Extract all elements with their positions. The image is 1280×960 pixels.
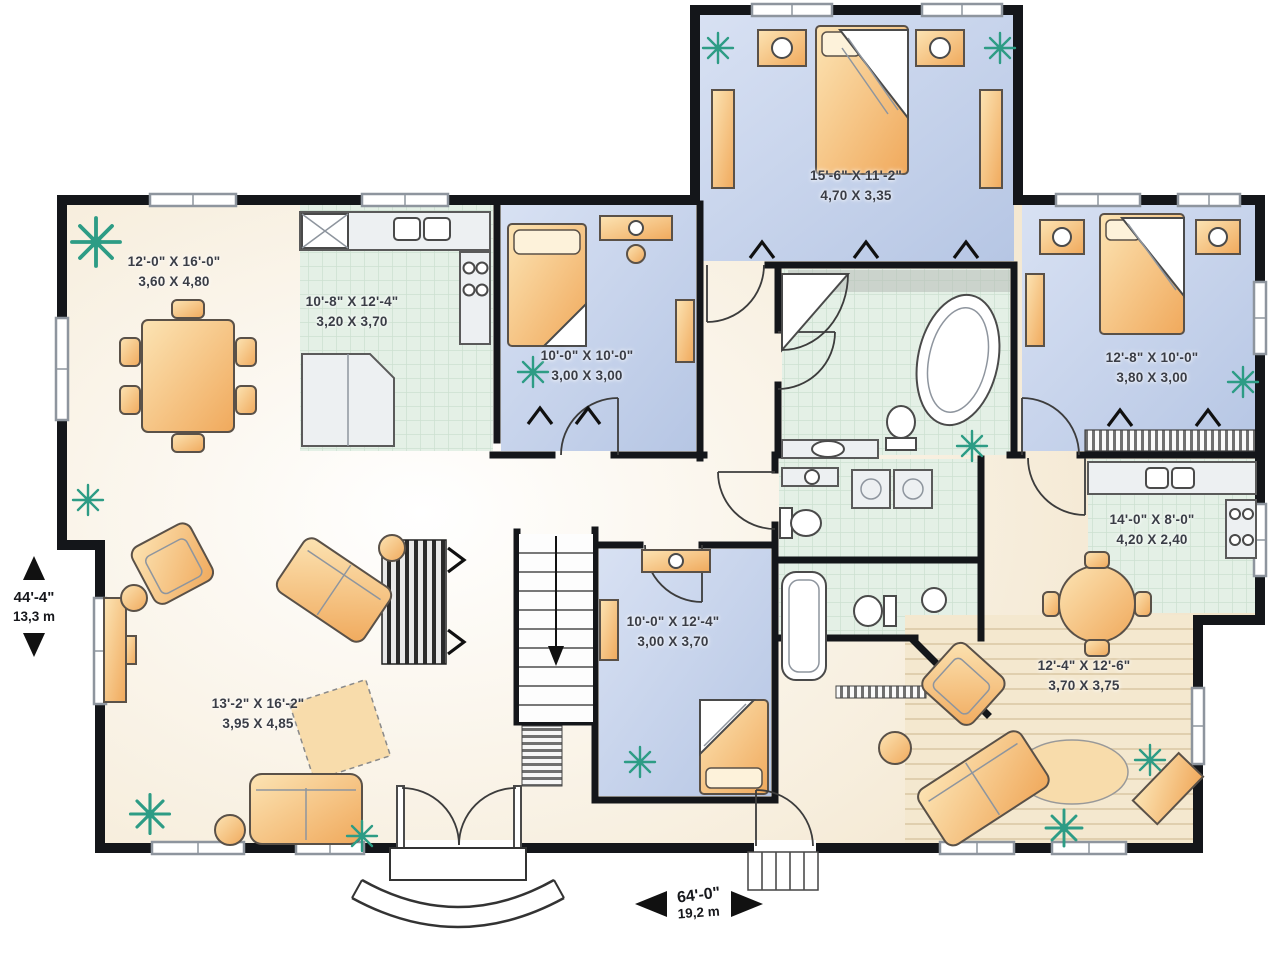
room-size-imperial: 15'-6" X 11'-2"	[771, 166, 941, 186]
height-imperial: 44'-4"	[14, 588, 55, 608]
pillow	[706, 768, 762, 788]
plant-icon	[347, 821, 377, 851]
room-label-family-room: 12'-4" X 12'-6" 3,70 X 3,75	[999, 656, 1169, 697]
side-table	[379, 535, 405, 561]
arrow-right-icon	[731, 891, 763, 917]
window	[1178, 194, 1240, 206]
room-size-metric: 3,95 X 4,85	[173, 714, 343, 734]
toilet-tank	[886, 438, 916, 450]
room-size-imperial: 13'-2" X 16'-2"	[173, 694, 343, 714]
plant-icon	[73, 485, 103, 515]
toilet	[887, 406, 915, 438]
room-size-metric: 3,80 X 3,00	[1067, 368, 1237, 388]
side-steps	[748, 852, 818, 890]
window	[922, 4, 1002, 16]
tv-unit	[104, 598, 126, 702]
pillow	[514, 230, 580, 254]
dining-table	[142, 320, 234, 432]
window	[362, 194, 448, 206]
room-size-imperial: 10'-8" X 12'-4"	[267, 292, 437, 312]
room-size-metric: 4,20 X 2,40	[1067, 530, 1237, 550]
toilet	[854, 596, 882, 626]
width-dimension: 64'-0" 19,2 m	[580, 886, 818, 921]
lamp	[930, 38, 950, 58]
floor-plan-drawing	[0, 0, 1280, 960]
bath-hatch	[836, 686, 926, 698]
dresser	[712, 90, 734, 188]
plant-icon	[1135, 745, 1165, 775]
dryer	[894, 470, 932, 508]
room-size-metric: 3,00 X 3,70	[588, 632, 758, 652]
sink	[805, 470, 819, 484]
room-label-master-bedroom: 15'-6" X 11'-2" 4,70 X 3,35	[771, 166, 941, 207]
plant-icon	[131, 795, 170, 834]
closet-hatch	[1085, 430, 1256, 451]
porch	[390, 848, 526, 880]
window	[752, 4, 832, 16]
desk-chair	[627, 245, 645, 263]
toilet	[791, 510, 821, 536]
window	[1192, 688, 1204, 764]
room-size-imperial: 12'-4" X 12'-6"	[999, 656, 1169, 676]
height-metric: 13,3 m	[13, 608, 55, 626]
washer	[852, 470, 890, 508]
room-size-imperial: 10'-0" X 12'-4"	[588, 612, 758, 632]
lamp	[1209, 228, 1227, 246]
room-size-metric: 3,60 X 4,80	[89, 272, 259, 292]
plant-icon	[1046, 810, 1082, 846]
room-label-kitchen-suite: 14'-0" X 8'-0" 4,20 X 2,40	[1067, 510, 1237, 551]
plant-icon	[985, 33, 1015, 63]
height-dimension: 44'-4" 13,3 m	[0, 556, 68, 657]
room-label-living-room: 13'-2" X 16'-2" 3,95 X 4,85	[173, 694, 343, 735]
room-size-imperial: 12'-8" X 10'-0"	[1067, 348, 1237, 368]
arrow-up-icon	[23, 556, 45, 580]
dresser	[1026, 274, 1044, 346]
plant-icon	[703, 33, 733, 63]
corner-table	[879, 732, 911, 764]
room-size-imperial: 10'-0" X 10'-0"	[502, 346, 672, 366]
door-leaf	[514, 786, 521, 848]
sink	[1146, 468, 1168, 488]
plant-icon	[957, 431, 987, 461]
room-size-imperial: 14'-0" X 8'-0"	[1067, 510, 1237, 530]
room-size-metric: 3,70 X 3,75	[999, 676, 1169, 696]
room-size-metric: 3,20 X 3,70	[267, 312, 437, 332]
porch-step	[362, 880, 554, 907]
desk-lamp	[629, 221, 643, 235]
room-size-metric: 3,00 X 3,00	[502, 366, 672, 386]
porch-step	[352, 898, 564, 927]
window	[1056, 194, 1140, 206]
floor-plan: 12'-0" X 16'-0" 3,60 X 4,80 10'-8" X 12'…	[0, 0, 1280, 960]
sink	[922, 588, 946, 612]
room-size-metric: 4,70 X 3,35	[771, 186, 941, 206]
room-label-bedroom-center: 10'-0" X 12'-4" 3,00 X 3,70	[588, 612, 758, 653]
room-size-imperial: 12'-0" X 16'-0"	[89, 252, 259, 272]
room-label-bedroom-right: 12'-8" X 10'-0" 3,80 X 3,00	[1067, 348, 1237, 389]
door-leaf	[397, 786, 404, 848]
arrow-down-icon	[23, 633, 45, 657]
arrow-left-icon	[635, 891, 667, 917]
desk-lamp	[669, 554, 683, 568]
round-table	[215, 815, 245, 845]
side-table	[121, 585, 147, 611]
room-label-dining: 12'-0" X 16'-0" 3,60 X 4,80	[89, 252, 259, 293]
window	[1254, 282, 1266, 354]
lamp	[772, 38, 792, 58]
dresser	[676, 300, 694, 362]
window	[150, 194, 236, 206]
plant-icon	[625, 747, 655, 777]
round-table	[1059, 566, 1135, 642]
dresser	[980, 90, 1002, 188]
sink	[812, 441, 844, 457]
kitchen-sink	[394, 218, 420, 240]
room-label-kitchen: 10'-8" X 12'-4" 3,20 X 3,70	[267, 292, 437, 333]
room-label-bedroom-left: 10'-0" X 10'-0" 3,00 X 3,00	[502, 346, 672, 387]
toilet-tank	[884, 596, 896, 626]
width-metric: 19,2 m	[677, 904, 721, 923]
lamp	[1053, 228, 1071, 246]
window	[56, 318, 68, 420]
